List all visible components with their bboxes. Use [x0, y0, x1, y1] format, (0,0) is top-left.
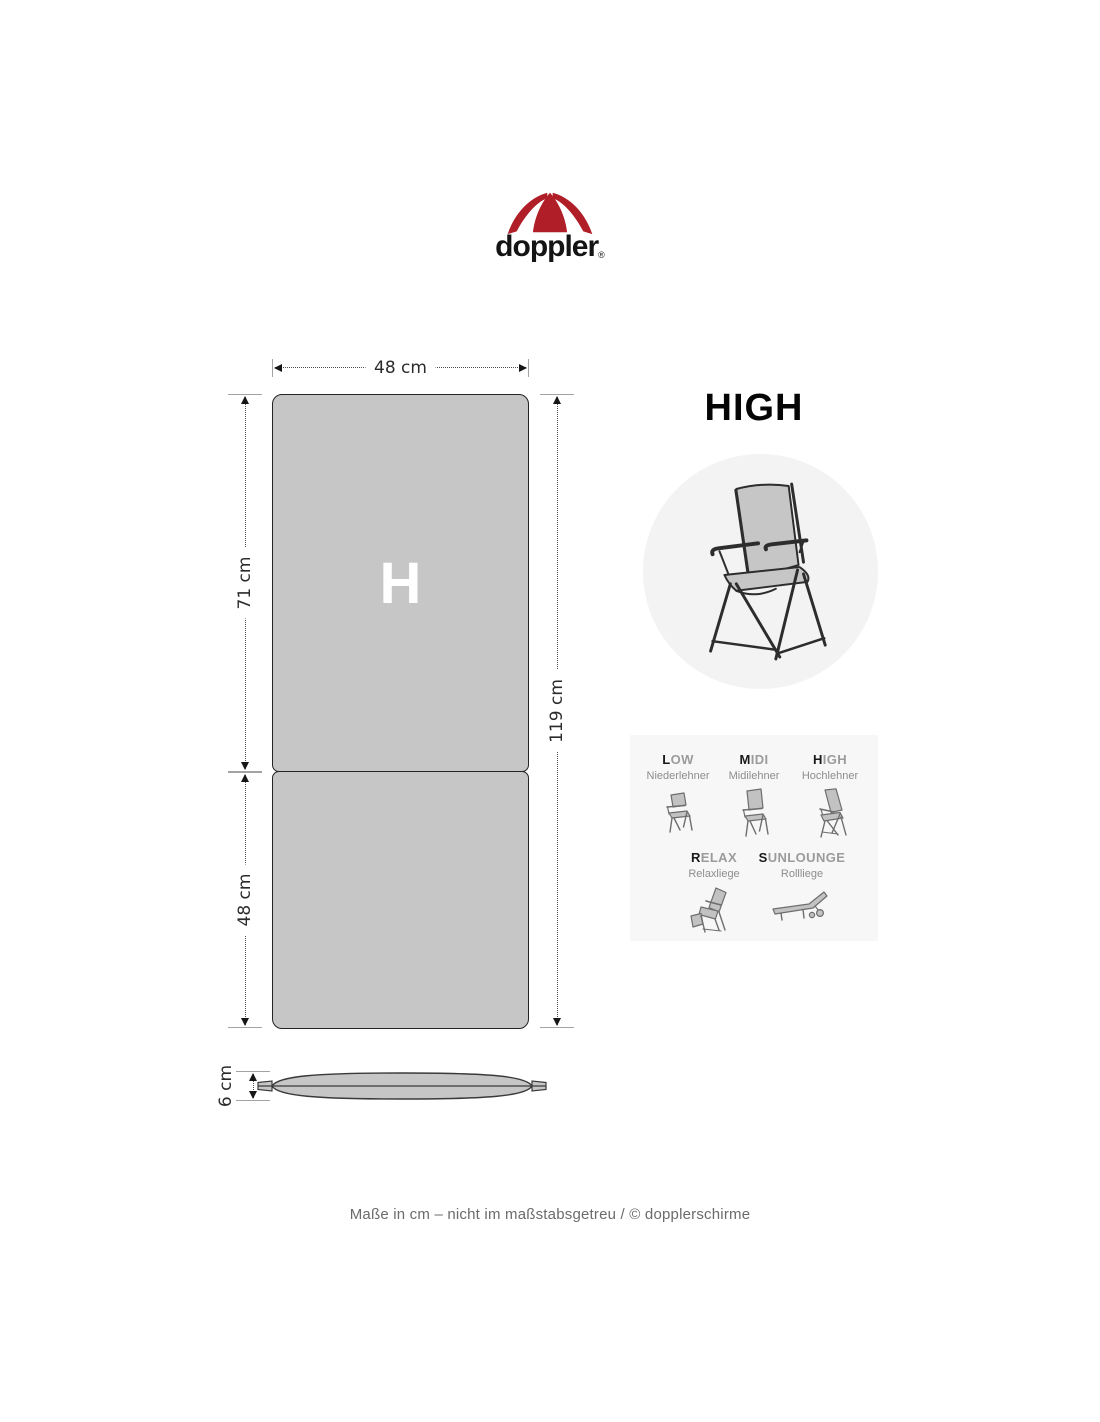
chair-type-label: HIGH: [792, 753, 868, 767]
chair-types-panel: LOW Niederlehner MIDI: [630, 735, 878, 941]
chair-type-subtitle: Rollliege: [758, 868, 846, 880]
chair-type-item-sunlounge: SUNLOUNGE Rollliege: [758, 851, 846, 936]
high-back-chair-icon: [677, 472, 845, 672]
chair-type-label: LOW: [640, 753, 716, 767]
logo-brand-text: doppler: [495, 230, 598, 263]
type-label-first-letter: S: [759, 850, 768, 865]
type-label-first-letter: M: [739, 752, 750, 767]
chair-type-label: SUNLOUNGE: [758, 851, 846, 865]
arrow-down-icon: [241, 762, 249, 770]
dim-tick: [540, 1027, 574, 1028]
type-label-rest: OW: [671, 752, 694, 767]
type-label-first-letter: R: [691, 850, 701, 865]
back-height-dimension-label: 71 cm: [235, 548, 255, 619]
chair-types-row-1: LOW Niederlehner MIDI: [640, 753, 868, 838]
type-label-first-letter: L: [662, 752, 670, 767]
logo-wordmark: doppler®: [490, 232, 610, 262]
dim-tick: [228, 772, 262, 773]
arrow-up-icon: [249, 1073, 257, 1081]
chair-type-icon-wrap: [670, 886, 758, 936]
chair-type-item-relax: RELAX Relaxliege: [670, 851, 758, 936]
product-dimension-sheet: doppler® H 48 cm 71 cm 48 cm 119: [0, 0, 1100, 1422]
dim-tick: [540, 394, 574, 395]
chair-type-subtitle: Niederlehner: [640, 770, 716, 782]
chair-types-row-2: RELAX Relaxliege SUNLOUNG: [670, 851, 846, 936]
dim-tick: [228, 1027, 262, 1028]
chair-illustration-circle: [643, 454, 878, 689]
type-label-first-letter: H: [813, 752, 823, 767]
chair-type-title: HIGH: [630, 389, 878, 427]
chair-type-subtitle: Relaxliege: [670, 868, 758, 880]
dim-tick: [228, 394, 262, 395]
cushion-side-view: [256, 1071, 548, 1101]
arrow-left-icon: [274, 364, 282, 372]
chair-type-item-high: HIGH Hochlehner: [792, 753, 868, 838]
arrow-right-icon: [519, 364, 527, 372]
type-label-rest: IDI: [751, 752, 769, 767]
chair-type-icon-wrap: [792, 788, 868, 838]
type-label-rest: UNLOUNGE: [768, 850, 846, 865]
width-dimension: 48 cm: [272, 357, 529, 379]
registered-mark: ®: [598, 250, 605, 260]
seat-height-dimension: 48 cm: [228, 772, 262, 1028]
dim-tick: [528, 359, 529, 377]
high-chair-icon: [811, 788, 849, 840]
type-label-rest: ELAX: [701, 850, 737, 865]
chair-type-item-low: LOW Niederlehner: [640, 753, 716, 838]
chair-type-icon-wrap: [640, 788, 716, 838]
footer-note: Maße in cm – nicht im maßstabsgetreu / ©…: [0, 1206, 1100, 1223]
sunlounge-chair-icon: [770, 886, 834, 924]
chair-type-label: RELAX: [670, 851, 758, 865]
chair-type-subtitle: Midilehner: [716, 770, 792, 782]
width-dimension-label: 48 cm: [365, 358, 436, 378]
back-height-dimension: 71 cm: [228, 394, 262, 772]
umbrella-icon: [504, 190, 596, 235]
doppler-logo: doppler®: [490, 190, 610, 262]
dim-tick: [272, 359, 273, 377]
chair-type-label: MIDI: [716, 753, 792, 767]
relax-chair-icon: [688, 886, 740, 934]
arrow-down-icon: [241, 1018, 249, 1026]
chair-type-item-midi: MIDI Midilehner: [716, 753, 792, 838]
total-height-dimension-label: 119 cm: [547, 670, 567, 752]
total-height-dimension: 119 cm: [540, 394, 574, 1028]
seat-height-dimension-label: 48 cm: [235, 865, 255, 936]
low-chair-icon: [660, 788, 696, 834]
chair-type-subtitle: Hochlehner: [792, 770, 868, 782]
cushion-letter: H: [272, 394, 529, 772]
arrow-up-icon: [241, 396, 249, 404]
arrow-down-icon: [553, 1018, 561, 1026]
midi-chair-icon: [736, 788, 772, 838]
chair-type-icon-wrap: [716, 788, 792, 838]
chair-type-icon-wrap: [758, 886, 846, 936]
thickness-dimension-label: 6 cm: [216, 1065, 236, 1107]
dim-tick: [236, 1071, 270, 1072]
dim-tick: [236, 1100, 270, 1101]
arrow-down-icon: [249, 1091, 257, 1099]
cushion-seat-section: [272, 771, 529, 1029]
arrow-up-icon: [241, 774, 249, 782]
type-label-rest: IGH: [823, 752, 847, 767]
arrow-up-icon: [553, 396, 561, 404]
thickness-dimension: 6 cm: [214, 1071, 270, 1101]
